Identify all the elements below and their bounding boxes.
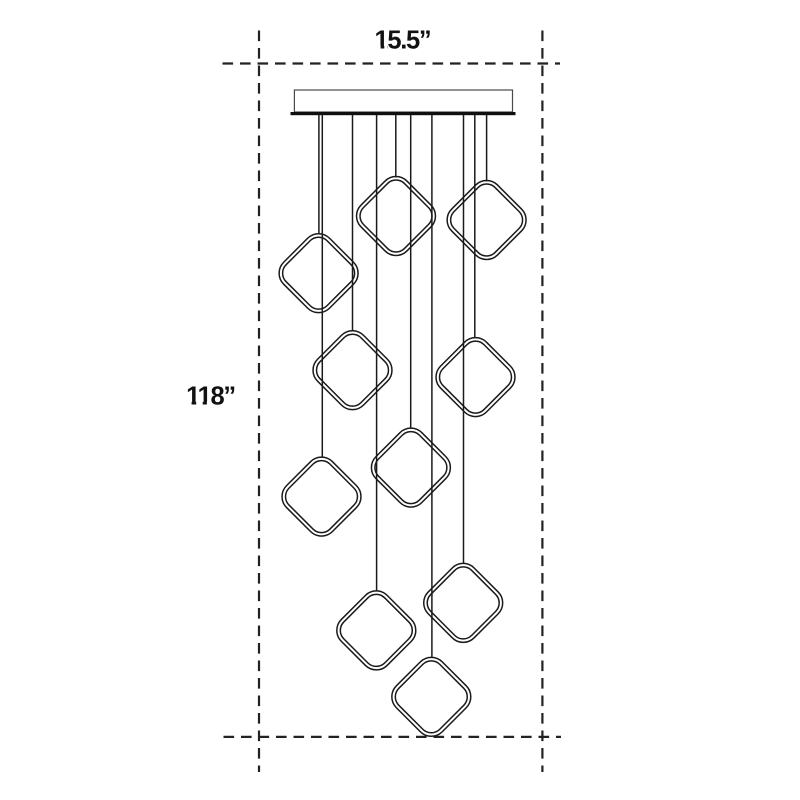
- svg-text:15.5”: 15.5”: [374, 27, 430, 55]
- svg-text:118”: 118”: [186, 383, 235, 411]
